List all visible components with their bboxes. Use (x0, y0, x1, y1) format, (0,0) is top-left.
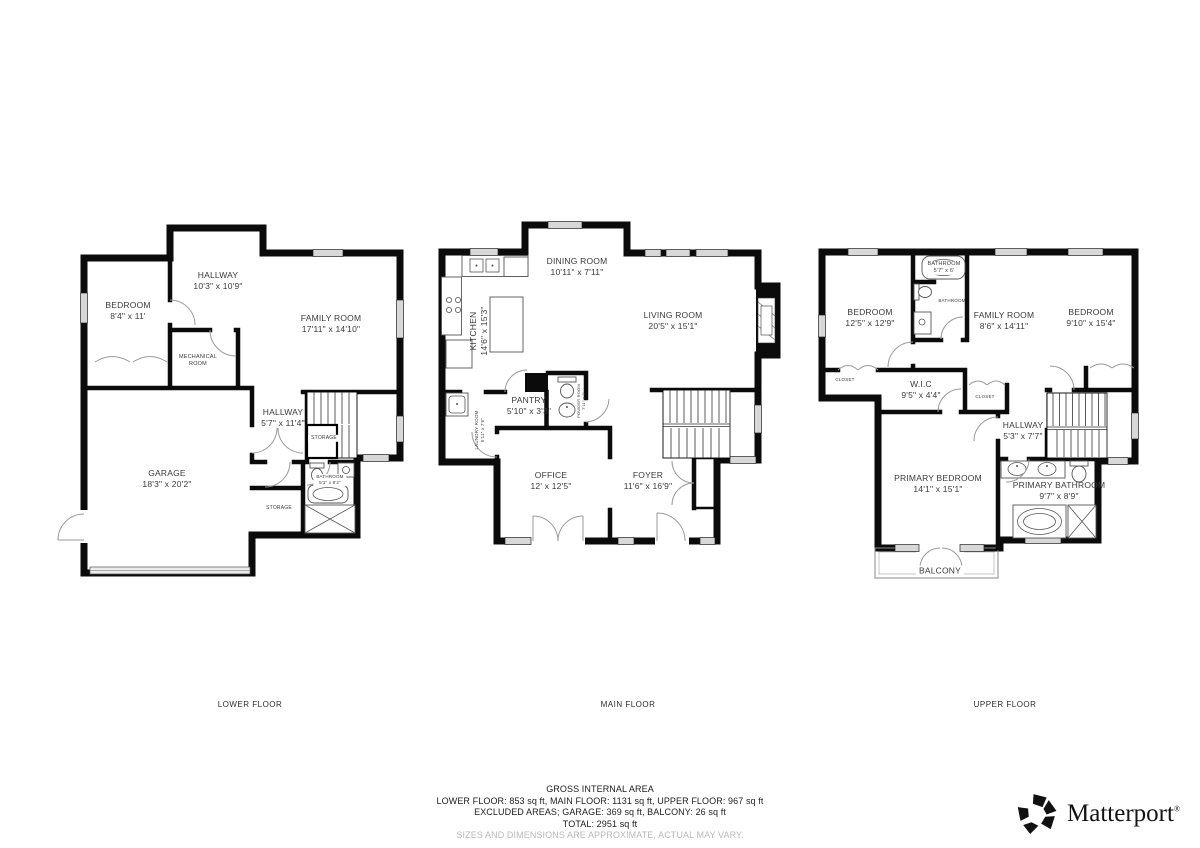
room-label-bathroom-lower: BATHROOM5'1" x 8'2" (313, 474, 346, 486)
room-label-primary-bedroom: PRIMARY BEDROOM14'1" x 15'1" (894, 473, 982, 495)
floorplan-page: HALLWAY10'3" x 10'9" BEDROOM8'4" x 11' F… (0, 0, 1200, 848)
room-label-laundry-room: LAUNDRY ROOM5'11" x 7'6" (474, 411, 486, 450)
room-label-closet-1: CLOSET (835, 377, 854, 383)
room-label-closet-2: CLOSET (975, 394, 994, 400)
main-floor-plan (442, 222, 778, 546)
room-label-foyer: FOYER11'6" x 16'9" (624, 470, 673, 492)
room-label-hallway-upper: HALLWAY10'3" x 10'9" (193, 270, 242, 292)
registered-mark: ® (1174, 805, 1180, 814)
room-label-hallway-lower: HALLWAY5'7" x 11'4" (261, 407, 305, 429)
room-label-bathroom-upper-2: BATHROOM (938, 298, 965, 304)
room-label-mechanical-room: MECHANICAL ROOM (176, 354, 220, 368)
room-label-family-room-upper: FAMILY ROOM8'6" x 14'11" (974, 310, 1034, 332)
room-label-dining-room: DINING ROOM10'11" x 7'11" (547, 256, 608, 278)
room-label-balcony: BALCONY (916, 565, 964, 576)
matterport-logo: Matterport® (1014, 792, 1180, 836)
footer-total-area: TOTAL: 2951 sq ft (563, 819, 637, 829)
room-label-storage-1: STORAGE (308, 435, 340, 442)
room-label-storage-2: STORAGE (266, 505, 292, 512)
room-label-wic: W.I.C9'5" x 4'4" (901, 379, 940, 401)
matterport-logo-icon (1014, 792, 1060, 836)
floor-title-lower: LOWER FLOOR (218, 700, 283, 709)
room-label-bedroom-upper-2: BEDROOM9'10" x 15'4" (1066, 307, 1115, 329)
room-label-bedroom-upper-1: BEDROOM12'5" x 12'9" (845, 307, 894, 329)
room-label-pantry: PANTRY5'10" x 3'3" (507, 395, 551, 417)
room-label-primary-bathroom: PRIMARY BATHROOM9'7" x 8'9" (1013, 480, 1105, 502)
room-label-hallway-upper-floor: HALLWAY5'3" x 7'7" (1003, 420, 1043, 442)
room-label-office: OFFICE12' x 12'5" (530, 470, 571, 492)
footer-disclaimer: SIZES AND DIMENSIONS ARE APPROXIMATE, AC… (456, 830, 743, 840)
room-label-living-room: LIVING ROOM20'5" x 15'1" (644, 310, 703, 332)
footer-floor-areas: LOWER FLOOR: 853 sq ft, MAIN FLOOR: 1131… (437, 796, 764, 806)
floor-title-main: MAIN FLOOR (601, 700, 656, 709)
room-label-bedroom-lower: BEDROOM8'4" x 11' (105, 300, 150, 322)
footer-excluded-areas: EXCLUDED AREAS; GARAGE: 369 sq ft, BALCO… (474, 807, 726, 817)
footer-gross-internal-area: GROSS INTERNAL AREA (546, 784, 654, 794)
room-label-powder-room: POWDER ROOM7'11" x 3' (576, 384, 586, 418)
matterport-wordmark: Matterport® (1067, 800, 1180, 828)
room-label-family-room-lower: FAMILY ROOM17'11" x 14'10" (301, 313, 361, 335)
room-label-kitchen: KITCHEN14'6" x 15'3" (468, 306, 490, 355)
floor-title-upper: UPPER FLOOR (974, 700, 1037, 709)
room-label-garage: GARAGE18'3" x 20'2" (142, 468, 191, 490)
room-label-bathroom-upper-1: BATHROOM5'7" x 6' (925, 261, 964, 275)
upper-floor-plan (819, 249, 1139, 579)
